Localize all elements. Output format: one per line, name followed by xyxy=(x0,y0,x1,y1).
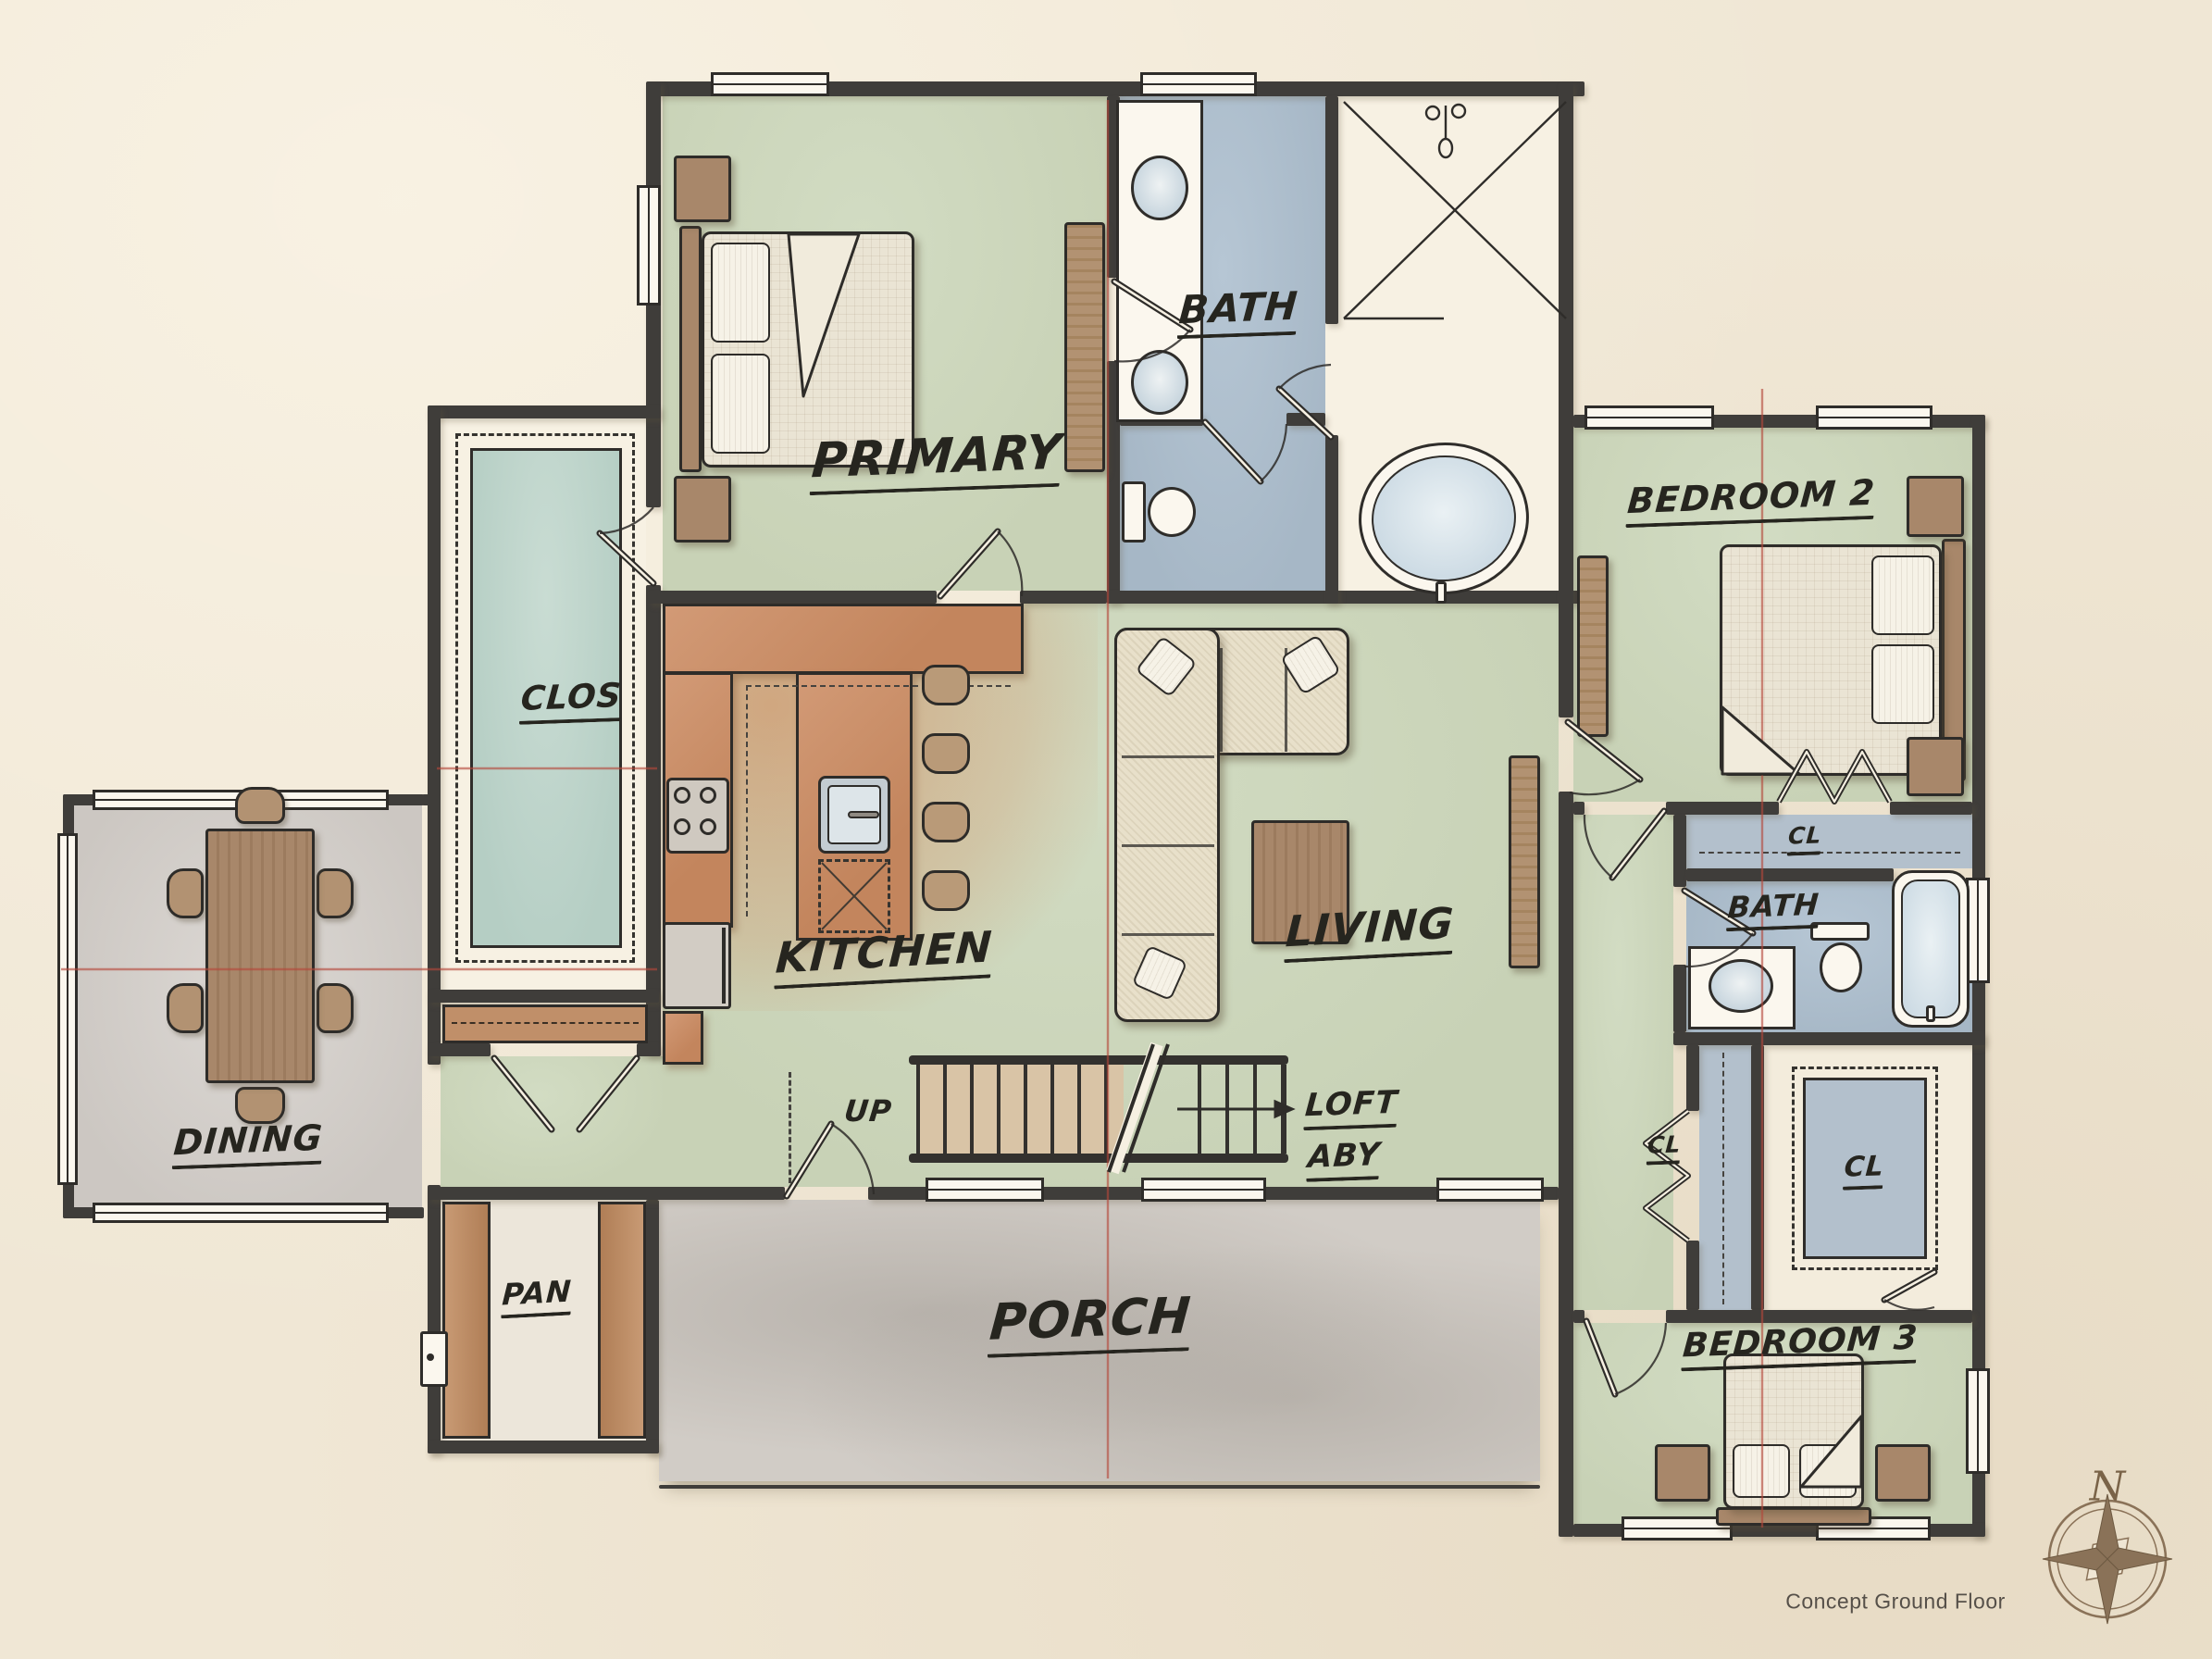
window xyxy=(637,185,661,306)
wall xyxy=(1666,1310,1972,1323)
wall xyxy=(1673,1032,1985,1045)
dining-chair xyxy=(235,787,285,824)
stairs-up-label: UP xyxy=(842,1093,893,1129)
window xyxy=(1966,1368,1990,1474)
wall xyxy=(1559,792,1573,1537)
wall xyxy=(1686,1241,1699,1310)
bedroom2-nightstand xyxy=(1907,737,1964,796)
stairs-loft-label2: ABY xyxy=(1306,1136,1382,1182)
wall xyxy=(1686,1045,1699,1111)
stair-treads-lower xyxy=(916,1065,1124,1154)
wall xyxy=(428,1441,659,1453)
dining-chair xyxy=(317,983,354,1033)
toilet-bowl-icon xyxy=(1148,487,1196,537)
bedroom2-pillow xyxy=(1871,555,1934,635)
porch-edge xyxy=(659,1485,1540,1489)
window xyxy=(711,72,829,96)
wall xyxy=(1559,81,1573,717)
room-label-clos: CLOS xyxy=(519,677,623,725)
stair-rail xyxy=(909,1055,1288,1065)
dishwasher-icon xyxy=(818,859,890,933)
dining-table xyxy=(205,829,315,1083)
room-label-dining: DINING xyxy=(172,1117,325,1170)
room-cl-linen-floor xyxy=(1686,815,1972,868)
cooktop-burner xyxy=(674,787,690,804)
tub-faucet-icon xyxy=(1926,1005,1935,1022)
cl-linen-rod xyxy=(1699,852,1960,854)
pantry-door-icon xyxy=(420,1331,448,1387)
floor-plan: PRIMARY BATH BEDROOM 2 CLOS KITCHEN LIVI… xyxy=(0,0,2212,1659)
bedroom3-nightstand xyxy=(1875,1444,1931,1502)
window xyxy=(1816,405,1932,430)
dining-chair xyxy=(317,868,354,918)
wall xyxy=(1325,96,1338,324)
wall xyxy=(1890,802,1972,815)
bar-stool xyxy=(922,802,970,842)
bedroom3-pillow xyxy=(1799,1444,1857,1498)
stair-rail xyxy=(909,1154,1288,1163)
window xyxy=(57,833,78,1185)
compass-north-label: N xyxy=(2090,1464,2126,1511)
room-label-living: LIVING xyxy=(1284,898,1455,963)
cased-opening-line xyxy=(789,1072,791,1183)
wall xyxy=(428,1187,785,1200)
room-label-bedroom2: BEDROOM 2 xyxy=(1625,472,1876,528)
wall xyxy=(1673,965,1686,1032)
media-console xyxy=(1509,755,1540,968)
wall xyxy=(428,405,661,418)
wall xyxy=(648,591,937,604)
bedroom3-nightstand xyxy=(1655,1444,1710,1502)
wall xyxy=(646,1200,659,1453)
room-label-kitchen: KITCHEN xyxy=(774,921,994,989)
mudroom-bench xyxy=(442,1004,648,1043)
dining-chair xyxy=(167,983,204,1033)
compass-rose-icon xyxy=(2043,1494,2172,1624)
tub-faucet-icon xyxy=(1435,581,1447,604)
bedroom3-pillow xyxy=(1733,1444,1790,1498)
sofa-cushion-line xyxy=(1220,648,1223,752)
wall xyxy=(646,585,661,1056)
window xyxy=(926,1178,1044,1202)
wall xyxy=(1686,868,1894,881)
wall xyxy=(1573,1310,1584,1323)
primary-nightstand xyxy=(674,156,731,222)
primary-bed-pillow xyxy=(711,354,770,454)
kitchen-counter-top xyxy=(663,604,1024,674)
entry-hall-floor xyxy=(441,1056,663,1187)
wall xyxy=(428,1185,441,1453)
bedroom3-headboard xyxy=(1716,1507,1871,1526)
cooktop-burner xyxy=(700,787,716,804)
kitchen-faucet-icon xyxy=(848,811,879,818)
wall xyxy=(428,1043,491,1056)
wall xyxy=(1751,1045,1764,1310)
room-label-bath2: BATH xyxy=(1726,887,1821,931)
wall xyxy=(1325,435,1338,604)
wall xyxy=(1666,802,1779,815)
room-label-cl-hall: CL xyxy=(1647,1130,1683,1165)
cooktop-burner xyxy=(700,818,716,835)
room-label-cl-linen: CL xyxy=(1787,821,1823,855)
fridge-door-line xyxy=(722,928,726,1004)
room-label-pan: PAN xyxy=(501,1274,573,1319)
wall xyxy=(1286,413,1325,426)
bathtub-inner-rim xyxy=(1901,879,1960,1018)
bath-sink-icon xyxy=(1131,156,1188,220)
wall xyxy=(422,794,441,805)
primary-bed-headboard xyxy=(679,226,702,472)
wall xyxy=(1020,591,1107,604)
wall xyxy=(1107,591,1584,604)
bench-hook-line xyxy=(452,1022,639,1024)
room-label-primary-bath: BATH xyxy=(1177,283,1300,339)
pantry-shelf xyxy=(442,1202,491,1439)
cooktop-burner xyxy=(674,818,690,835)
cl-hall-rod xyxy=(1722,1053,1724,1304)
stair-treads-upper xyxy=(1174,1065,1286,1154)
primary-dresser xyxy=(1064,222,1105,472)
room-label-cl-bedroom3: CL xyxy=(1843,1150,1885,1190)
room-cl-hall-floor xyxy=(1699,1045,1751,1310)
pantry-shelf xyxy=(598,1202,646,1439)
wall xyxy=(428,405,441,1065)
wing-hall-floor xyxy=(1573,815,1673,1310)
plan-caption: Concept Ground Floor xyxy=(1785,1590,2006,1615)
window xyxy=(93,1203,389,1223)
window xyxy=(1140,72,1257,96)
toilet-tank-icon xyxy=(1122,481,1146,543)
toilet-bowl-icon xyxy=(1820,942,1862,992)
wall xyxy=(1573,802,1584,815)
toilet-tank-icon xyxy=(1810,922,1870,941)
kitchen-cabinet xyxy=(663,1011,703,1065)
pantry-door-knob xyxy=(427,1353,434,1361)
bath-sink-icon xyxy=(1131,350,1188,415)
sofa-cushion-line xyxy=(1122,933,1214,936)
window xyxy=(1436,1178,1544,1202)
fridge-icon xyxy=(663,922,731,1009)
bedroom2-pillow xyxy=(1871,644,1934,724)
room-label-bedroom3: BEDROOM 3 xyxy=(1681,1319,1919,1372)
sofa-cushion-line xyxy=(1122,755,1214,758)
kitchen-upper-cabinet-line xyxy=(746,685,1011,687)
stairs-loft-label: LOFT xyxy=(1303,1084,1398,1130)
primary-nightstand xyxy=(674,476,731,543)
window xyxy=(1584,405,1714,430)
bar-stool xyxy=(922,665,970,705)
sofa-cushion-line xyxy=(1122,844,1214,847)
dining-chair xyxy=(167,868,204,918)
window xyxy=(1141,1178,1266,1202)
bar-stool xyxy=(922,733,970,774)
room-label-porch: PORCH xyxy=(988,1286,1193,1358)
wall xyxy=(637,1043,661,1056)
primary-bed-pillow xyxy=(711,243,770,343)
shower-floor xyxy=(1338,96,1572,324)
bedroom2-dresser xyxy=(1577,555,1609,737)
room-label-primary: PRIMARY xyxy=(810,425,1064,495)
bedroom2-nightstand xyxy=(1907,476,1964,537)
bath-sink-icon xyxy=(1709,959,1773,1013)
wall xyxy=(1673,815,1686,887)
wall xyxy=(428,990,659,1003)
bar-stool xyxy=(922,870,970,911)
kitchen-upper-cabinet-line xyxy=(746,685,748,917)
